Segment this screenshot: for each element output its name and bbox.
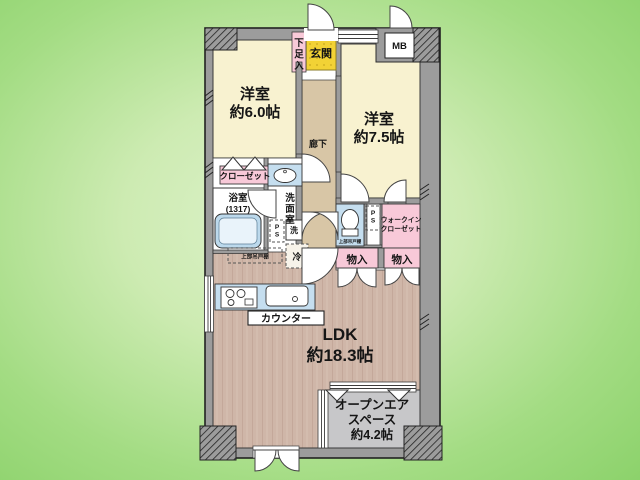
wic-label-line2: クローゼット: [381, 224, 422, 233]
ldk-name-label: LDK: [323, 325, 359, 344]
corridor-label: 廊下: [309, 138, 327, 149]
terrace-door-left-swing: [255, 450, 276, 471]
shoe-cabinet-label: 下足入: [293, 38, 304, 72]
floorplan: 洋室 約6.0帖 洋室 約7.5帖 LDK 約18.3帖 オープンエア スペース…: [0, 0, 640, 480]
wall-corridor-right: [336, 76, 341, 172]
kitchen-sink-icon: [266, 286, 308, 306]
storage2-label: 物入: [392, 253, 413, 266]
vanity-washbasin-icon: [268, 164, 302, 186]
bathtub-icon: [215, 214, 261, 248]
pipe-space1-label: PS: [275, 224, 280, 239]
toilet-upper-cabinet-label: 上部吊戸棚: [339, 238, 362, 245]
mb-door-swing: [390, 6, 412, 28]
pillar-top-right: [413, 28, 439, 62]
window-ldk-openair-vertical: [318, 390, 328, 448]
refrigerator-label: 冷: [292, 251, 301, 262]
entrance-label: 玄関: [310, 46, 332, 60]
pillar-bottom-right: [404, 426, 442, 460]
entrance-door-swing: [308, 4, 334, 30]
upper-cabinet-label: 上部吊戸棚: [241, 253, 269, 261]
stove-icon: [221, 287, 257, 308]
terrace-door-right-swing: [278, 450, 299, 471]
window-top: [338, 30, 378, 43]
pillar-top-left: [205, 28, 237, 50]
wall-bedroom2-bottom-right: [406, 198, 420, 204]
pipe-space2-label: PS: [371, 210, 376, 225]
ldk-size-label: 約18.3帖: [306, 345, 373, 365]
wall-bathroom-bottom: [213, 250, 268, 254]
washer-label: 洗: [290, 225, 298, 235]
bathroom-size-label: (1317): [226, 204, 251, 214]
meter-box-label: MB: [392, 41, 407, 52]
bedroom1-name-label: 洋室: [240, 85, 270, 103]
closet-label: クローゼット: [219, 171, 270, 181]
wic-label-line1: ウォークイン: [381, 215, 422, 224]
counter-label: カウンター: [261, 313, 311, 325]
wall-storage-divider: [378, 248, 384, 268]
bedroom2-size-label: 約7.5帖: [354, 128, 405, 146]
wall-corridor-left-upper: [296, 62, 302, 154]
bathroom-name-label: 浴室: [228, 192, 248, 204]
openair-label-line3: 約4.2帖: [351, 427, 394, 442]
entrance-step: [302, 70, 336, 80]
bedroom1-size-label: 約6.0帖: [230, 103, 281, 121]
washroom-label: 洗面室: [285, 192, 295, 226]
floorplan-canvas: 洋室 約6.0帖 洋室 約7.5帖 LDK 約18.3帖 オープンエア スペース…: [0, 0, 640, 480]
openair-label-line2: スペース: [348, 413, 397, 427]
storage1-label: 物入: [347, 253, 368, 266]
bedroom2-name-label: 洋室: [364, 110, 394, 128]
openair-label-line1: オープンエア: [335, 397, 409, 412]
pillar-bottom-left: [200, 426, 236, 460]
window-left: [205, 276, 214, 332]
